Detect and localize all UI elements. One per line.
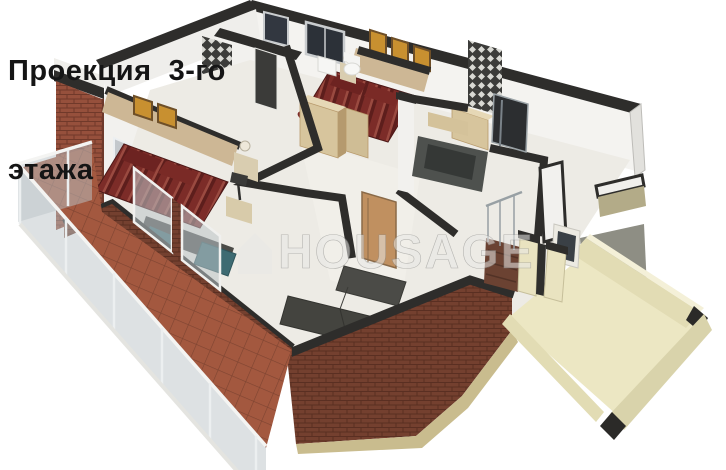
dark-cabinet (255, 48, 277, 110)
toilet-icon (344, 63, 360, 75)
watermark-text: HOUSAGE (278, 226, 535, 279)
floor-plan-render: HOUSAGE Проекция 3-го этажа (0, 0, 726, 470)
page-title: Проекция 3-го этажа (8, 0, 226, 220)
lamp-icon (240, 141, 250, 151)
watermark: HOUSAGE (238, 226, 535, 279)
title-line-2: этажа (8, 154, 226, 187)
small-window-icon (264, 12, 288, 46)
shower-icon (492, 94, 528, 152)
title-line-1: Проекция 3-го (8, 55, 226, 88)
